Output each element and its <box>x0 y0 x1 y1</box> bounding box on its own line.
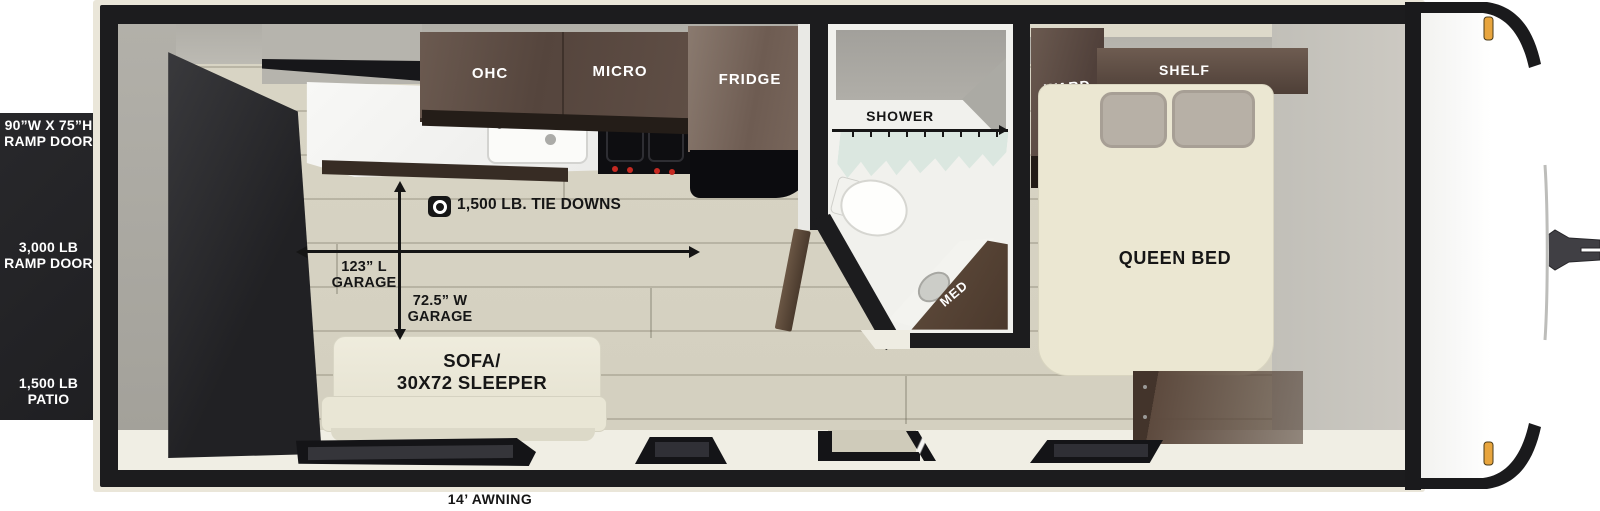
floor-seam <box>650 288 652 338</box>
ramp-door-spec-panel: 90”W X 75”HRAMP DOOR 3,000 LBRAMP DOOR 1… <box>0 113 97 420</box>
tie-down-ring-icon <box>433 200 447 214</box>
sink-drain-icon <box>545 134 556 145</box>
tie-downs-label: 1,500 LB. TIE DOWNS <box>457 197 621 213</box>
curtain-hooks-icon <box>836 131 1004 137</box>
ramp-door-weight-label: 3,000 LBRAMP DOOR <box>0 240 97 271</box>
shower-label: SHOWER <box>840 109 960 125</box>
awning-label: 14’ AWNING <box>400 492 580 508</box>
arrow-head-icon <box>394 329 406 340</box>
ramp-door-size-label: 90”W X 75”HRAMP DOOR <box>0 118 97 149</box>
shelf-label: SHELF <box>1097 63 1272 79</box>
queen-bed-label: QUEEN BED <box>1068 251 1282 267</box>
window <box>635 437 727 464</box>
entry-door-step <box>826 452 920 461</box>
curtain-rod-end-icon <box>999 125 1008 135</box>
front-cap <box>1395 0 1600 511</box>
sofa-sleeper: SOFA/ 30X72 SLEEPER <box>333 336 601 402</box>
arrow-head-icon <box>689 246 700 258</box>
left-interior-wall <box>118 24 176 430</box>
window-pane <box>655 442 709 457</box>
fridge-base-shadow <box>690 150 812 198</box>
bathroom-wall <box>810 24 828 230</box>
front-cap-body <box>1421 6 1549 486</box>
front-wall <box>1405 2 1421 490</box>
patio-weight-label: 1,500 LBPATIO <box>0 376 97 407</box>
drawer-handle-icon <box>1143 385 1147 389</box>
hitch-coupler-icon <box>1541 230 1600 270</box>
micro-label: MICRO <box>552 64 688 80</box>
entry-door-opening <box>828 430 916 454</box>
window <box>296 438 536 466</box>
overhead-cabinet: OHC MICRO <box>420 32 690 122</box>
arrow-head-icon <box>296 246 307 258</box>
window-pane <box>1054 444 1148 457</box>
garage-length-label: 123” LGARAGE <box>322 260 406 291</box>
sofa-label-line2: 30X72 SLEEPER <box>344 372 600 394</box>
pillow <box>1100 92 1167 148</box>
arrow-head-icon <box>394 181 406 192</box>
sofa-seat <box>321 396 607 432</box>
window <box>1030 440 1163 463</box>
stove-knob-icon <box>654 168 660 174</box>
fridge-label: FRIDGE <box>688 72 812 88</box>
bathroom-wall <box>1013 24 1030 348</box>
garage-length-arrow <box>305 250 691 253</box>
sofa-label-line1: SOFA/ <box>344 350 600 372</box>
fridge: FRIDGE <box>688 26 812 152</box>
stove-knob-icon <box>627 167 633 173</box>
marker-light-icon <box>1484 17 1493 40</box>
tie-down-anchor-icon <box>428 196 451 217</box>
stove-knob-icon <box>612 166 618 172</box>
floor-seam <box>905 376 907 424</box>
marker-light-icon <box>1484 442 1493 465</box>
bed-dresser <box>1133 371 1303 444</box>
pillow <box>1172 90 1255 148</box>
window-pane <box>308 445 513 460</box>
garage-width-label: 72.5” WGARAGE <box>398 294 482 325</box>
stove-knob-icon <box>669 169 675 175</box>
ohc-label: OHC <box>432 66 548 82</box>
drawer-handle-icon <box>1143 415 1147 419</box>
toy-hauler-floorplan: 90”W X 75”HRAMP DOOR 3,000 LBRAMP DOOR 1… <box>0 0 1600 511</box>
